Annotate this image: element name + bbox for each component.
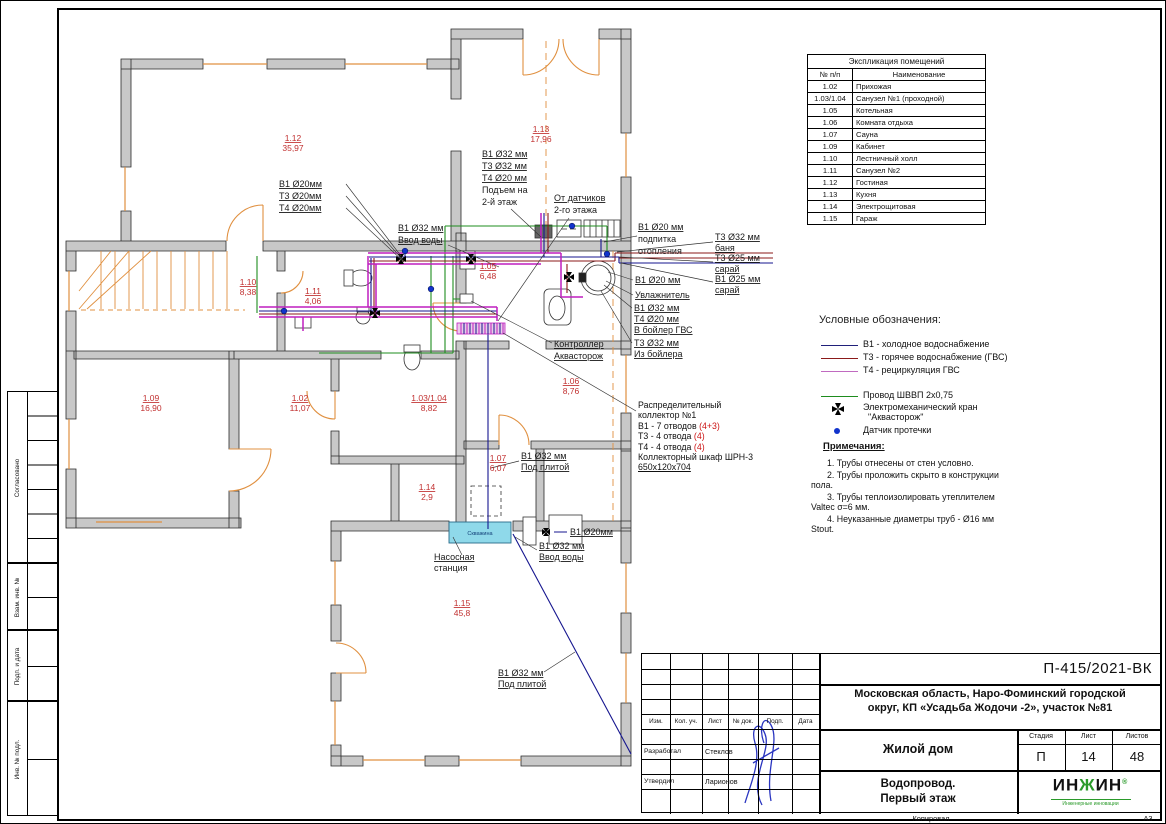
pipe-label: Т3 Ø32 мм [482,161,527,171]
legend: Условные обозначения: В1 - холодное водо… [816,306,1026,446]
room-tag-area: 11,07 [290,403,311,413]
pipe-label: В1 Ø32 мм [521,451,566,461]
room-num: 1.15 [808,213,853,225]
room-tag-area: 35,97 [282,143,304,153]
room-tag-num: 1.07 [490,453,507,463]
boiler-inner [585,265,611,291]
pipe-label: Т3 Ø20мм [279,191,321,201]
room-explication-table: Экспликация помещений № п/п Наименование… [807,54,986,225]
collector-t3-count: (4) [694,431,705,441]
table-row: 1.15Гараж [808,213,986,225]
table-row: 1.14Электрощитовая [808,201,986,213]
stamp-side-podp: Подп. и дата [7,630,58,701]
pipe-label: Т3 Ø32 мм [715,232,760,242]
logo-text: ИНЖИН® [1019,770,1162,799]
note-item: 3. Трубы теплоизолировать утеплителем Va… [811,492,1016,513]
collector-t4: Т4 - 4 отвода [638,442,694,452]
notes: Примечания: 1. Трубы отнесены от стен ус… [811,441,1016,536]
room-tag-num: 1.09 [143,393,160,403]
table-row: 1.07Сауна [808,129,986,141]
room-num: 1.10 [808,153,853,165]
collector-line: Т3 - 4 отвода (4) [638,431,753,441]
pipe-label: подпитка [638,234,676,244]
hydro-tank [523,517,536,545]
room-name: Кабинет [853,141,986,153]
room-tag-num: 1.12 [285,133,302,143]
room-tag-area: 4,06 [305,296,322,306]
legend-sensor-label: Датчик протечки [863,425,931,435]
address-line2: округ, КП «Усадьба Жодочи -2», участок №… [820,701,1160,715]
stamp-side-vzam: Взам. инв. № [7,563,58,630]
pipe-label: В1 Ø32 мм [398,223,443,233]
drawing-sheet: В1 Ø20мм Т3 Ø20мм Т4 Ø20мм В1 Ø32 мм Вво… [0,0,1166,824]
collector-line: Т4 - 4 отвода (4) [638,442,753,452]
sauna-bench [471,486,501,516]
legend-valve-label1: Электромеханический кран [863,402,978,412]
note-item: 2. Трубы проложить скрыто в конструкции … [811,470,1016,491]
legend-wire-label: Провод ШВВП 2х0,75 [863,390,953,400]
title-block: Изм. Кол. уч. Лист № док. Подп. Дата Раз… [641,653,1161,813]
pipe-label: Ввод воды [539,552,583,562]
drawing-title-line1: Водопровод. [819,777,1017,792]
notes-title: Примечания: [823,441,1016,452]
room-name: Котельная [853,105,986,117]
pipe-label: Подъем на [482,185,528,195]
pipe-label: Под плитой [498,679,546,689]
logo-subtitle: Инженерные инновации [1051,799,1131,807]
pipe-label: В1 Ø32 мм [482,149,527,159]
collector-line: Распределительный [638,400,753,410]
col-header-num: № п/п [808,69,853,81]
pipe-label: Из бойлера [634,349,683,359]
sheet-header: Лист [1065,729,1112,744]
table-row: 1.06Комната отдыха [808,117,986,129]
developer-name: Стеклов [705,744,757,759]
collector-line: В1 - 7 отводов (4+3) [638,421,753,431]
sheet-value: 14 [1065,744,1112,770]
pipe-label: Увлажнитель [635,290,690,300]
collector-t3: Т3 - 4 отвода [638,431,694,441]
project-address: Московская область, Наро-Фоминский город… [820,687,1160,715]
aquastorozh-controller [460,294,473,303]
controller-label: Аквасторож [554,351,603,361]
stamp-side-inv: Инв. № подл. [7,701,58,816]
approver-name: Ларионов [705,774,757,789]
room-name: Санузел №2 [853,165,986,177]
stage-header: Стадия [1017,729,1065,744]
room-name: Сауна [853,129,986,141]
logo-part3: ИН [1096,776,1123,795]
room-tag-area: 17,96 [530,134,552,144]
col-header-name: Наименование [853,69,986,81]
room-num: 1.13 [808,189,853,201]
logo-reg-mark: ® [1122,779,1128,786]
col-data: Дата [792,714,819,729]
pipe-label: В1 Ø32 мм [634,303,679,313]
room-num: 1.09 [808,141,853,153]
table-row: 1.09Кабинет [808,141,986,153]
pump-station-label: Насосная [434,552,475,562]
stairs [79,251,227,309]
collector-cabinet-size: 650х120х704 [638,462,753,472]
pipe-label: отопления [638,246,682,256]
logo-part2: Ж [1079,776,1095,795]
room-tag-num: 1.02 [292,393,309,403]
legend-sensor-icon [834,428,840,434]
pipe-label: В1 Ø20 мм [638,222,683,232]
object-name: Жилой дом [819,729,1017,770]
room-num: 1.03/1.04 [808,93,853,105]
pipe-label: Т3 Ø32 мм [634,338,679,348]
well-label: Скважина [467,531,493,537]
table-title: Экспликация помещений [808,55,986,69]
pipe-label: сарай [715,264,740,274]
format-label: А3 [1137,814,1159,823]
col-podp: Подп. [758,714,792,729]
controller-label: Контроллер [554,339,604,349]
room-tag-num: 1.06 [563,376,580,386]
room-tag-area: 8,82 [421,403,438,413]
sheets-value: 48 [1112,744,1162,770]
room-num: 1.14 [808,201,853,213]
pipe-label: В1 Ø32 мм [539,541,584,551]
appliance-washer [557,220,581,237]
pipe-label: Т4 Ø20 мм [482,173,527,183]
room-name: Электрощитовая [853,201,986,213]
room-tag-num: 1.13 [533,124,550,134]
pipe-label: Ввод воды [398,235,442,245]
pump-station-label: станция [434,563,468,573]
room-tag-area: 6,48 [480,271,497,281]
col-doc: № док. [728,714,758,729]
pipe-label: В1 Ø20мм [570,527,613,537]
collector-note: Распределительный коллектор №1 В1 - 7 от… [638,400,753,473]
pipe-label: В1 Ø32 мм [498,668,543,678]
developer-label: Разработал [644,744,702,759]
pipe-label: Т4 Ø20 мм [634,314,679,324]
toilet-tank [344,270,353,286]
room-tag-num: 1.10 [240,277,257,287]
legend-t4-label: Т4 - рециркуляция ГВС [863,365,960,375]
pipe-label: От датчиков [554,193,606,203]
collector-cabinet: Коллекторный шкаф ШРН-3 [638,452,753,462]
room-num: 1.07 [808,129,853,141]
legend-t3-swatch [821,358,858,359]
sheets-header: Листов [1112,729,1162,744]
table-row: 1.12Гостиная [808,177,986,189]
room-name: Прихожая [853,81,986,93]
stamp-side-label: Взам. инв. № [8,564,28,631]
legend-b1-label: В1 - холодное водоснабжение [863,339,989,349]
stamp-side-label: Подп. и дата [8,631,28,702]
pipe-label: В1 Ø20мм [279,179,322,189]
room-num: 1.06 [808,117,853,129]
room-tag-num: 1.03/1.04 [411,393,447,403]
shower-bowl [549,296,565,320]
room-tag-area: 45,8 [454,608,471,618]
approver-label: Утвердил [644,774,702,789]
room-tag-area: 16,90 [140,403,162,413]
pipe-label: В1 Ø20 мм [635,275,680,285]
collector-b1: В1 - 7 отводов [638,421,699,431]
col-list: Лист [702,714,728,729]
pipe-label: Т3 Ø25 мм [715,253,760,263]
collector-line: коллектор №1 [638,410,753,420]
col-izm: Изм. [642,714,670,729]
legend-wire-swatch [821,396,858,397]
room-num: 1.12 [808,177,853,189]
pipe-label: баня [715,243,735,253]
pipe-label: В бойлер ГВС [634,325,693,335]
table-row: 1.10Лестничный холл [808,153,986,165]
note-item: 1. Трубы отнесены от стен условно. [811,458,1016,469]
table-row: 1.13Кухня [808,189,986,201]
room-name: Кухня [853,189,986,201]
pipe-label: сарай [715,285,740,295]
table-row: 1.02Прихожая [808,81,986,93]
room-name: Санузел №1 (проходной) [853,93,986,105]
legend-title: Условные обозначения: [819,314,941,326]
room-tag-num: 1.14 [419,482,436,492]
room-name: Комната отдыха [853,117,986,129]
document-number: П-415/2021-ВК [822,656,1152,682]
table-row: 1.05Котельная [808,105,986,117]
toilet-2-tank [404,345,420,352]
collector-b1-count: (4+3) [699,421,720,431]
room-tag-area: 2,9 [421,492,433,502]
stage-value: П [1017,744,1065,770]
legend-valve-icon [831,402,845,416]
pipe-label: 2-й этаж [482,197,517,207]
legend-b1-swatch [821,345,858,346]
table-row: 1.03/1.04Санузел №1 (проходной) [808,93,986,105]
room-tag-num: 1.15 [454,598,471,608]
room-tag-area: 6,07 [490,463,507,473]
pipe-label: Под плитой [521,462,569,472]
room-name: Лестничный холл [853,153,986,165]
room-tag-num: 1.05 [480,261,497,271]
room-tag-num: 1.11 [305,286,321,296]
pipe-label: Т4 Ø20мм [279,203,321,213]
legend-valve-label2: "Аквасторож" [868,412,923,422]
stamp-side-approved: Согласовано [7,391,58,563]
room-tag-area: 8,38 [240,287,257,297]
stamp-side-label: Согласовано [8,392,28,564]
pipe-label: 2-го этажа [554,205,597,215]
drawing-title: Водопровод. Первый этаж [819,772,1017,807]
note-item: 4. Неуказанные диаметры труб - Ø16 мм St… [811,514,1016,535]
col-kol: Кол. уч. [670,714,702,729]
address-line1: Московская область, Наро-Фоминский город… [820,687,1160,701]
pipe-label: В1 Ø25 мм [715,274,760,284]
room-name: Гостиная [853,177,986,189]
room-num: 1.05 [808,105,853,117]
room-num: 1.11 [808,165,853,177]
room-num: 1.02 [808,81,853,93]
copied-label: Копировал [891,814,971,823]
stamp-side-label: Инв. № подл. [8,702,28,817]
legend-t4-swatch [821,371,858,372]
logo-part1: ИН [1053,776,1080,795]
boiler-burner [579,273,586,282]
room-name: Гараж [853,213,986,225]
legend-t3-label: Т3 - горячее водоснабжение (ГВС) [863,352,1007,362]
room-tag-area: 8,76 [563,386,580,396]
drawing-title-line2: Первый этаж [819,792,1017,807]
table-row: 1.11Санузел №2 [808,165,986,177]
company-logo: ИНЖИН® Инженерные инновации [1019,770,1162,814]
collector-t4-count: (4) [694,442,705,452]
